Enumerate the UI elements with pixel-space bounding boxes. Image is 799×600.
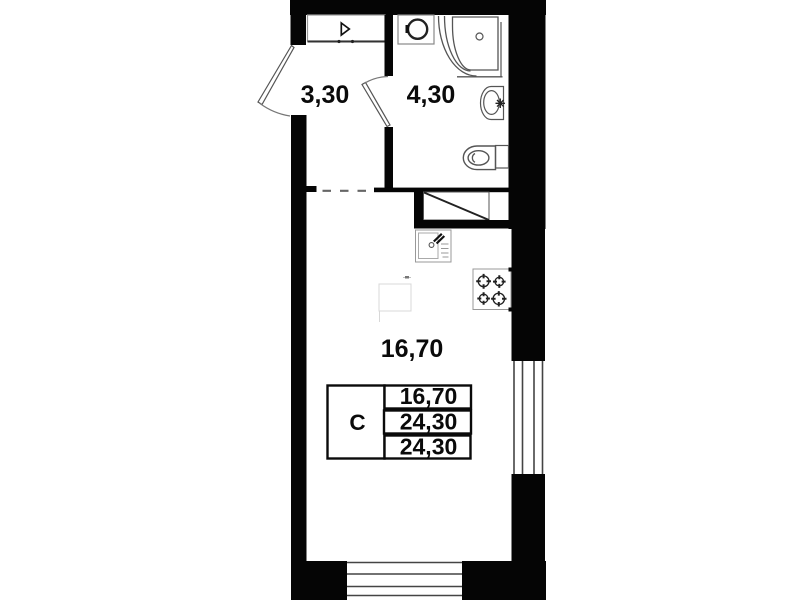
svg-text:16,70: 16,70 [381, 335, 444, 363]
svg-text:4,30: 4,30 [407, 81, 456, 109]
svg-text:24,30: 24,30 [400, 434, 458, 460]
svg-text:24,30: 24,30 [400, 409, 458, 435]
svg-text:16,70: 16,70 [400, 383, 458, 409]
svg-text:C: C [349, 410, 365, 435]
svg-text:3,30: 3,30 [301, 81, 350, 109]
